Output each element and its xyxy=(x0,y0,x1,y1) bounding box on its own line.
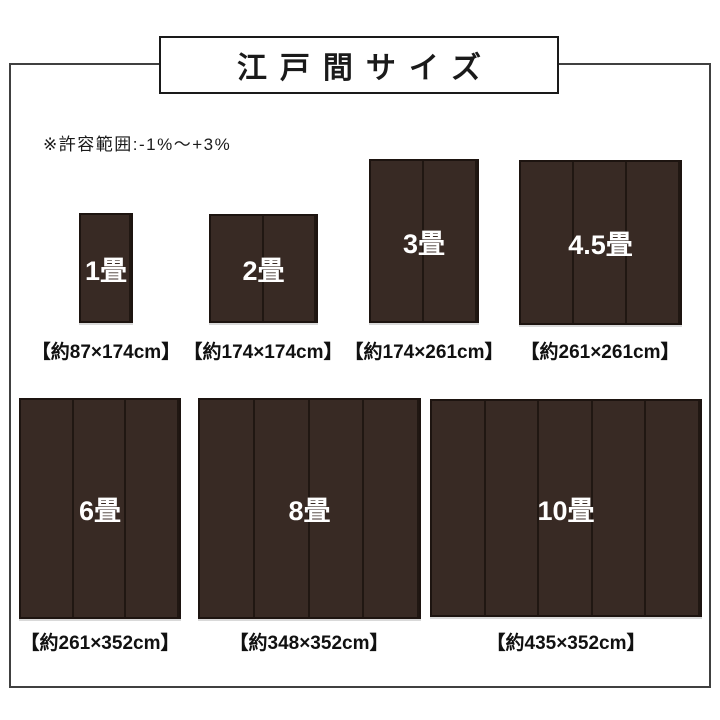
mat-panel xyxy=(255,400,310,617)
mat-2jo-caption: 【約174×174cm】 xyxy=(184,337,343,364)
mat-10jo-caption: 【約435×352cm】 xyxy=(487,628,646,655)
mat-2jo: 2畳 xyxy=(209,214,318,323)
size-chart-canvas: 江戸間サイズ ※許容範囲:-1%〜+3% 1畳 【約87×174cm】 2畳 【… xyxy=(0,0,720,720)
mat-3jo: 3畳 xyxy=(369,159,479,323)
mat-panel xyxy=(574,162,627,323)
title-box: 江戸間サイズ xyxy=(159,36,559,94)
mat-panel xyxy=(627,162,680,323)
mat-panel xyxy=(646,401,700,615)
mat-panel xyxy=(486,401,540,615)
mat-1jo-caption: 【約87×174cm】 xyxy=(32,337,180,364)
mat-panel xyxy=(432,401,486,615)
mat-10jo: 10畳 xyxy=(430,399,702,617)
mat-panel xyxy=(310,400,365,617)
mat-panel xyxy=(521,162,574,323)
mat-panel xyxy=(264,216,317,321)
mat-panel xyxy=(364,400,419,617)
mat-4-5jo-caption: 【約261×261cm】 xyxy=(521,337,680,364)
mat-6jo-caption: 【約261×352cm】 xyxy=(21,628,180,655)
mat-4-5jo: 4.5畳 xyxy=(519,160,682,325)
page-title: 江戸間サイズ xyxy=(224,43,494,87)
mat-panel xyxy=(126,400,179,617)
mat-panel xyxy=(424,161,477,321)
mat-8jo: 8畳 xyxy=(198,398,421,619)
mat-panel xyxy=(371,161,424,321)
mat-panel xyxy=(74,400,127,617)
mat-8jo-caption: 【約348×352cm】 xyxy=(230,628,389,655)
mat-panel xyxy=(211,216,264,321)
mat-panel xyxy=(200,400,255,617)
mat-1jo: 1畳 xyxy=(79,213,133,323)
tolerance-note: ※許容範囲:-1%〜+3% xyxy=(43,130,231,155)
mat-6jo: 6畳 xyxy=(19,398,181,619)
mat-panel xyxy=(81,215,131,321)
mat-panel xyxy=(21,400,74,617)
mat-panel xyxy=(539,401,593,615)
mat-3jo-caption: 【約174×261cm】 xyxy=(345,337,504,364)
mat-panel xyxy=(593,401,647,615)
